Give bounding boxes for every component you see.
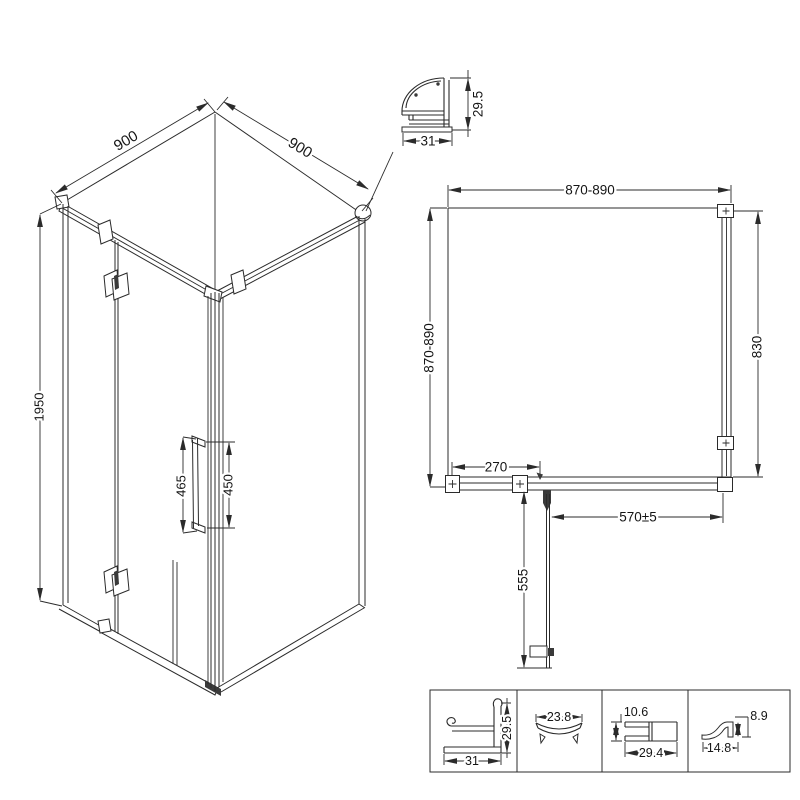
wall-profile-detail: 29.5 31 [444, 698, 514, 768]
drawing-line [406, 81, 441, 108]
dim-plan-depth: 870-890 [422, 208, 448, 487]
bottom-rail-left [100, 625, 218, 695]
drawing-line [409, 115, 449, 124]
panel-clip [513, 476, 528, 493]
door-open-plan [547, 494, 550, 668]
panel-clip [718, 205, 734, 218]
profile-details-strip: 29.5 31 23.8 [430, 690, 790, 772]
drawing-line [649, 722, 652, 741]
drawing-line [573, 734, 578, 743]
dim-curved-width-label: 23.8 [547, 710, 571, 724]
drawing-line [173, 560, 177, 666]
drawing-line [56, 103, 208, 193]
drawing-line [493, 699, 502, 707]
door-hinge-top [104, 270, 129, 300]
drawing-line [611, 714, 622, 741]
bottom-rail-cap [98, 619, 111, 633]
dim-corner-height: 29.5 [450, 70, 486, 137]
drawing-line [451, 726, 494, 731]
dim-width-left-label: 900 [111, 127, 141, 154]
drawing-canvas: 1950 900 900 465 450 [0, 0, 800, 800]
screw-mark [414, 93, 417, 96]
drawing-line [444, 747, 501, 753]
dim-corner-width-label: 31 [420, 134, 435, 149]
dim-height-label: 1950 [32, 393, 47, 422]
dim-seal-height: 8.9 [735, 709, 768, 737]
drawing-line [402, 127, 452, 132]
dim-door-opening-label: 570±5 [619, 510, 656, 525]
panel-clip [446, 476, 460, 493]
dim-width-right-label: 900 [285, 134, 315, 161]
dim-plan-depth-label: 870-890 [422, 323, 437, 373]
drawing-line [402, 111, 444, 115]
dim-handle-centers: 450 [206, 442, 236, 528]
dim-door-width-label: 555 [516, 569, 531, 592]
dim-seal-width-label: 14.8 [707, 741, 731, 755]
technical-drawing-page: 1950 900 900 465 450 [0, 0, 800, 800]
drawing-line [63, 204, 68, 605]
drawing-line [359, 216, 365, 606]
drawing-line [61, 207, 216, 295]
dim-wall-height-label: 29.5 [500, 716, 514, 740]
dim-tube-width-label: 29.4 [639, 746, 663, 760]
dim-corner-height-label: 29.5 [471, 91, 486, 117]
dim-tube-width: 29.4 [625, 742, 677, 760]
drawing-line [192, 436, 205, 447]
dim-seal-height-label: 8.9 [750, 709, 767, 723]
rail-clamp-right [231, 270, 246, 294]
dim-door-opening: 570±5 [552, 493, 723, 525]
dim-panel-830-label: 830 [750, 336, 765, 359]
drawing-line [447, 718, 455, 726]
dim-width-right: 900 [217, 97, 373, 211]
leader-line [366, 152, 393, 211]
door-handle-plan [530, 646, 547, 657]
panel-clip [718, 437, 734, 450]
drawing-line [448, 208, 731, 487]
drawing-line [51, 99, 215, 203]
isometric-view: 1950 900 900 465 450 [32, 97, 374, 696]
plan-view: 870-890 870-890 830 270 570±5 [422, 183, 765, 669]
drawing-line [540, 734, 545, 743]
drawing-line [59, 605, 104, 632]
door-handle [192, 436, 205, 533]
dim-wall-height: 29.5 [500, 698, 514, 758]
door-hinge-bottom [104, 566, 129, 596]
corner-joint [718, 478, 733, 492]
rail-clamp-left [98, 220, 113, 244]
curved-profile-detail: 23.8 [536, 710, 582, 743]
dim-hinge-offset-label: 270 [485, 460, 508, 475]
drawing-line [625, 722, 649, 741]
drawing-line [702, 722, 733, 739]
dim-handle-centers-label: 450 [221, 474, 236, 496]
dim-handle-length-label: 465 [174, 475, 189, 497]
screw-mark [436, 82, 439, 85]
dim-seal-width: 14.8 [703, 741, 738, 755]
dim-height: 1950 [32, 204, 63, 606]
drawing-line [548, 648, 554, 656]
dim-tube-height-label: 10.6 [624, 705, 648, 719]
dim-plan-width: 870-890 [448, 183, 731, 208]
front-panel-plan [448, 477, 731, 490]
dim-curved-width: 23.8 [536, 710, 582, 724]
tube-profile-detail: 10.6 29.4 [611, 705, 677, 760]
dim-corner-width: 31 [403, 133, 452, 149]
dim-panel-830: 830 [733, 211, 765, 477]
drawing-line [625, 722, 677, 741]
drawing-line [211, 292, 219, 691]
seal-profile-detail: 8.9 14.8 [702, 709, 768, 755]
dim-wall-width-label: 31 [465, 754, 479, 768]
drawing-line [193, 438, 199, 528]
dim-wall-width: 31 [444, 754, 501, 768]
drawing-line [217, 604, 365, 692]
drawing-line [735, 717, 751, 737]
dim-width-left: 900 [51, 99, 215, 203]
dim-plan-width-label: 870-890 [565, 183, 615, 198]
